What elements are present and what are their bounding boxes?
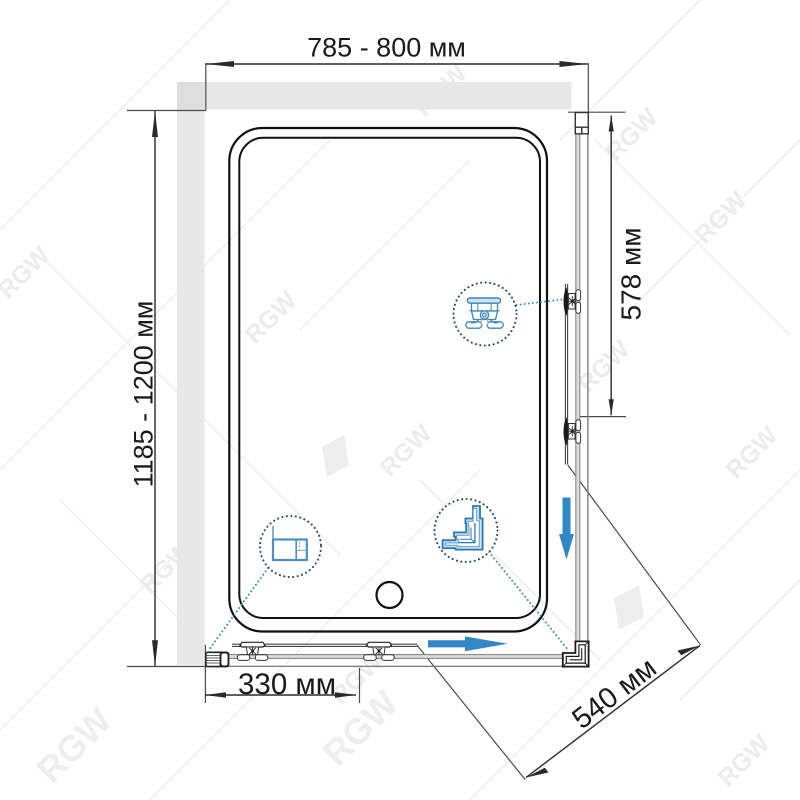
svg-text:785 - 800 мм: 785 - 800 мм	[307, 33, 466, 63]
svg-text:578 мм: 578 мм	[616, 228, 647, 321]
svg-text:330 мм: 330 мм	[238, 668, 336, 701]
svg-text:1185 - 1200 мм: 1185 - 1200 мм	[129, 301, 159, 488]
